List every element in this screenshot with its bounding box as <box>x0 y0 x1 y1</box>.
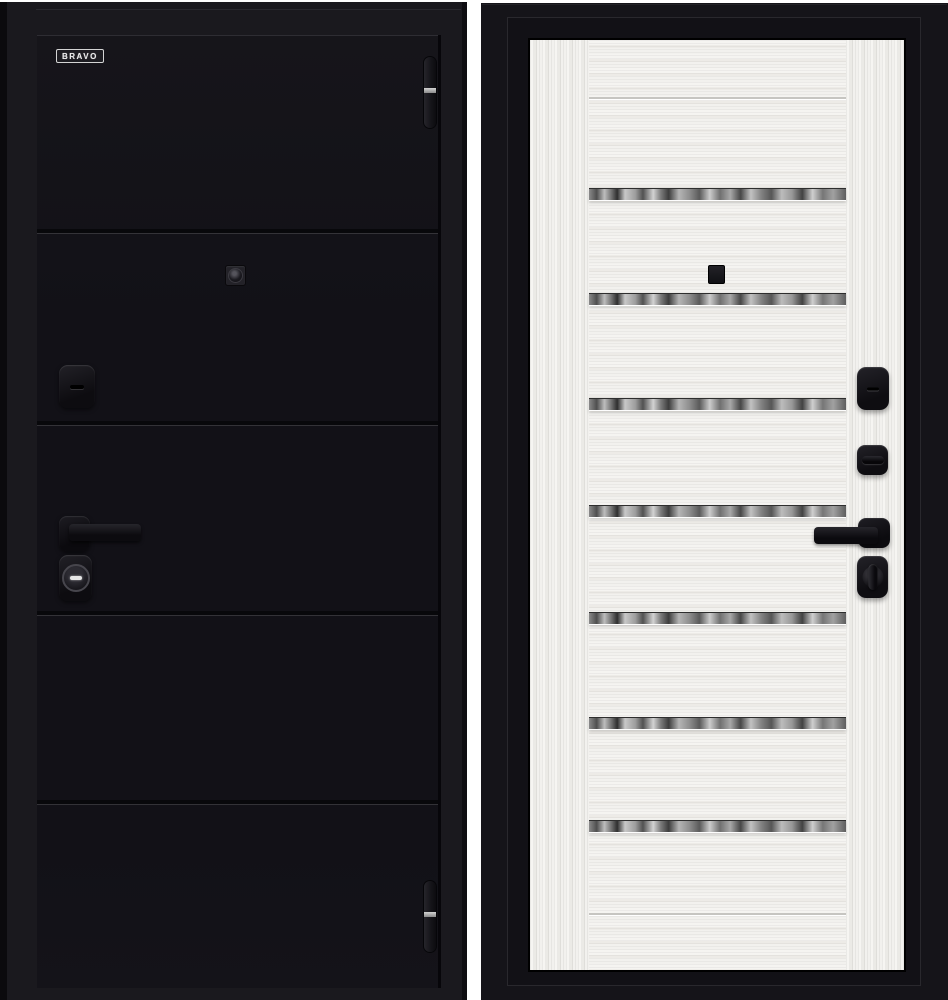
door-interior-view <box>481 3 948 1000</box>
deadbolt-keyhole-slot <box>70 385 84 389</box>
door-exterior-view: BRAVO <box>0 2 467 1000</box>
exterior-panel-groove <box>37 800 438 804</box>
top-hinge <box>424 57 436 128</box>
cylinder-lock-escutcheon <box>59 555 92 601</box>
exterior-frame-left-edge <box>0 2 7 1000</box>
interior-right-stile <box>846 40 904 970</box>
interior-panel-groove <box>589 97 846 99</box>
night-latch-plate <box>857 556 888 598</box>
interior-frame-top-highlight <box>482 4 947 5</box>
interior-leaf <box>530 40 904 970</box>
mirror-insert-strip <box>589 820 846 833</box>
bottom-hinge-band <box>424 912 436 917</box>
interior-peephole <box>708 265 725 284</box>
thumbturn-plate <box>857 445 888 475</box>
mirror-insert-strip <box>589 505 846 518</box>
brand-logo-badge: BRAVO <box>56 49 104 63</box>
mirror-insert-strip <box>589 717 846 730</box>
bottom-hinge <box>424 881 436 952</box>
door-product-image[interactable]: BRAVO <box>0 0 948 1000</box>
exterior-lever-handle <box>69 524 141 541</box>
interior-panel-groove <box>589 913 846 915</box>
mirror-insert-strip <box>589 398 846 411</box>
mirror-insert-strip <box>589 612 846 625</box>
night-latch-knob <box>868 564 877 590</box>
exterior-panel-groove <box>37 229 438 233</box>
peephole <box>225 265 246 286</box>
exterior-frame-top-molding <box>36 9 461 10</box>
cylinder-keyhole-slot <box>70 576 82 580</box>
exterior-panel-groove <box>37 611 438 615</box>
exterior-panel-groove <box>37 421 438 425</box>
exterior-leaf: BRAVO <box>37 35 441 988</box>
exterior-frame-right-edge <box>462 2 467 1000</box>
top-hinge-band <box>424 88 436 93</box>
peephole-lens <box>228 268 243 283</box>
interior-left-stile <box>530 40 589 970</box>
deadbolt-escutcheon <box>59 365 95 408</box>
keyhole-plate <box>857 367 889 410</box>
mirror-insert-strip <box>589 293 846 306</box>
interior-lever-handle <box>814 527 878 544</box>
thumbturn-oval <box>862 456 884 464</box>
keyhole-plate-slot <box>867 387 879 390</box>
mirror-insert-strip <box>589 188 846 201</box>
